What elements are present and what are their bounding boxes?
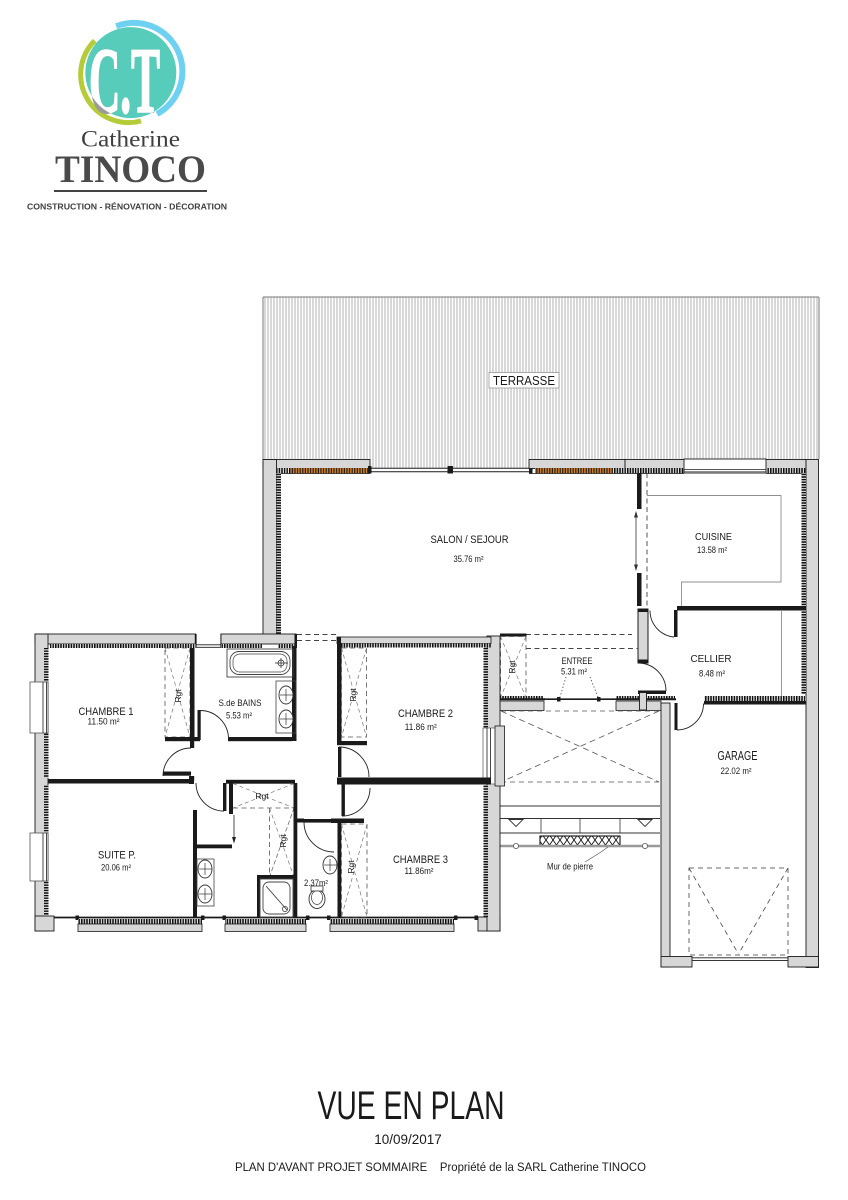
svg-text:GARAGE: GARAGE bbox=[718, 749, 758, 763]
svg-text:11.86 m²: 11.86 m² bbox=[405, 722, 437, 732]
svg-text:VUE EN PLAN: VUE EN PLAN bbox=[318, 1084, 505, 1128]
svg-text:10/09/2017: 10/09/2017 bbox=[374, 1132, 442, 1147]
svg-text:SUITE P.: SUITE P. bbox=[98, 850, 136, 862]
svg-text:5.53 m²: 5.53 m² bbox=[226, 711, 252, 721]
svg-text:ENTREE: ENTREE bbox=[562, 656, 593, 667]
svg-text:Rgt: Rgt bbox=[173, 689, 183, 703]
svg-text:Rgt: Rgt bbox=[507, 660, 517, 674]
svg-text:5.31 m²: 5.31 m² bbox=[561, 667, 587, 677]
svg-text:20.06 m²: 20.06 m² bbox=[101, 863, 131, 873]
svg-text:Rgt: Rgt bbox=[278, 834, 288, 848]
svg-text:22.02 m²: 22.02 m² bbox=[721, 766, 752, 776]
svg-text:SALON / SEJOUR: SALON / SEJOUR bbox=[431, 534, 509, 546]
svg-text:CONSTRUCTION - RÉNOVATION - DÉ: CONSTRUCTION - RÉNOVATION - DÉCORATION bbox=[27, 202, 227, 212]
svg-text:8.48 m²: 8.48 m² bbox=[699, 669, 725, 679]
svg-text:13.58 m²: 13.58 m² bbox=[697, 545, 727, 555]
svg-text:11.50 m²: 11.50 m² bbox=[88, 717, 120, 727]
svg-text:Rgt: Rgt bbox=[346, 860, 356, 874]
svg-text:Rgt: Rgt bbox=[255, 791, 269, 801]
svg-text:CELLIER: CELLIER bbox=[691, 653, 732, 665]
svg-text:TERRASSE: TERRASSE bbox=[493, 374, 555, 388]
svg-text:CHAMBRE 2: CHAMBRE 2 bbox=[398, 708, 453, 720]
svg-text:PLAN D'AVANT PROJET SOMMAIRE: PLAN D'AVANT PROJET SOMMAIRE Propriété d… bbox=[235, 1160, 646, 1174]
svg-text:Mur de pierre: Mur de pierre bbox=[547, 862, 593, 872]
svg-text:S.de BAINS: S.de BAINS bbox=[219, 698, 262, 709]
svg-text:35.76 m²: 35.76 m² bbox=[454, 554, 484, 564]
svg-text:CHAMBRE 3: CHAMBRE 3 bbox=[393, 854, 448, 866]
svg-text:TINOCO: TINOCO bbox=[55, 148, 206, 191]
svg-text:11.86m²: 11.86m² bbox=[405, 866, 434, 876]
svg-text:Rgt: Rgt bbox=[348, 688, 358, 702]
svg-text:CUISINE: CUISINE bbox=[695, 531, 732, 543]
